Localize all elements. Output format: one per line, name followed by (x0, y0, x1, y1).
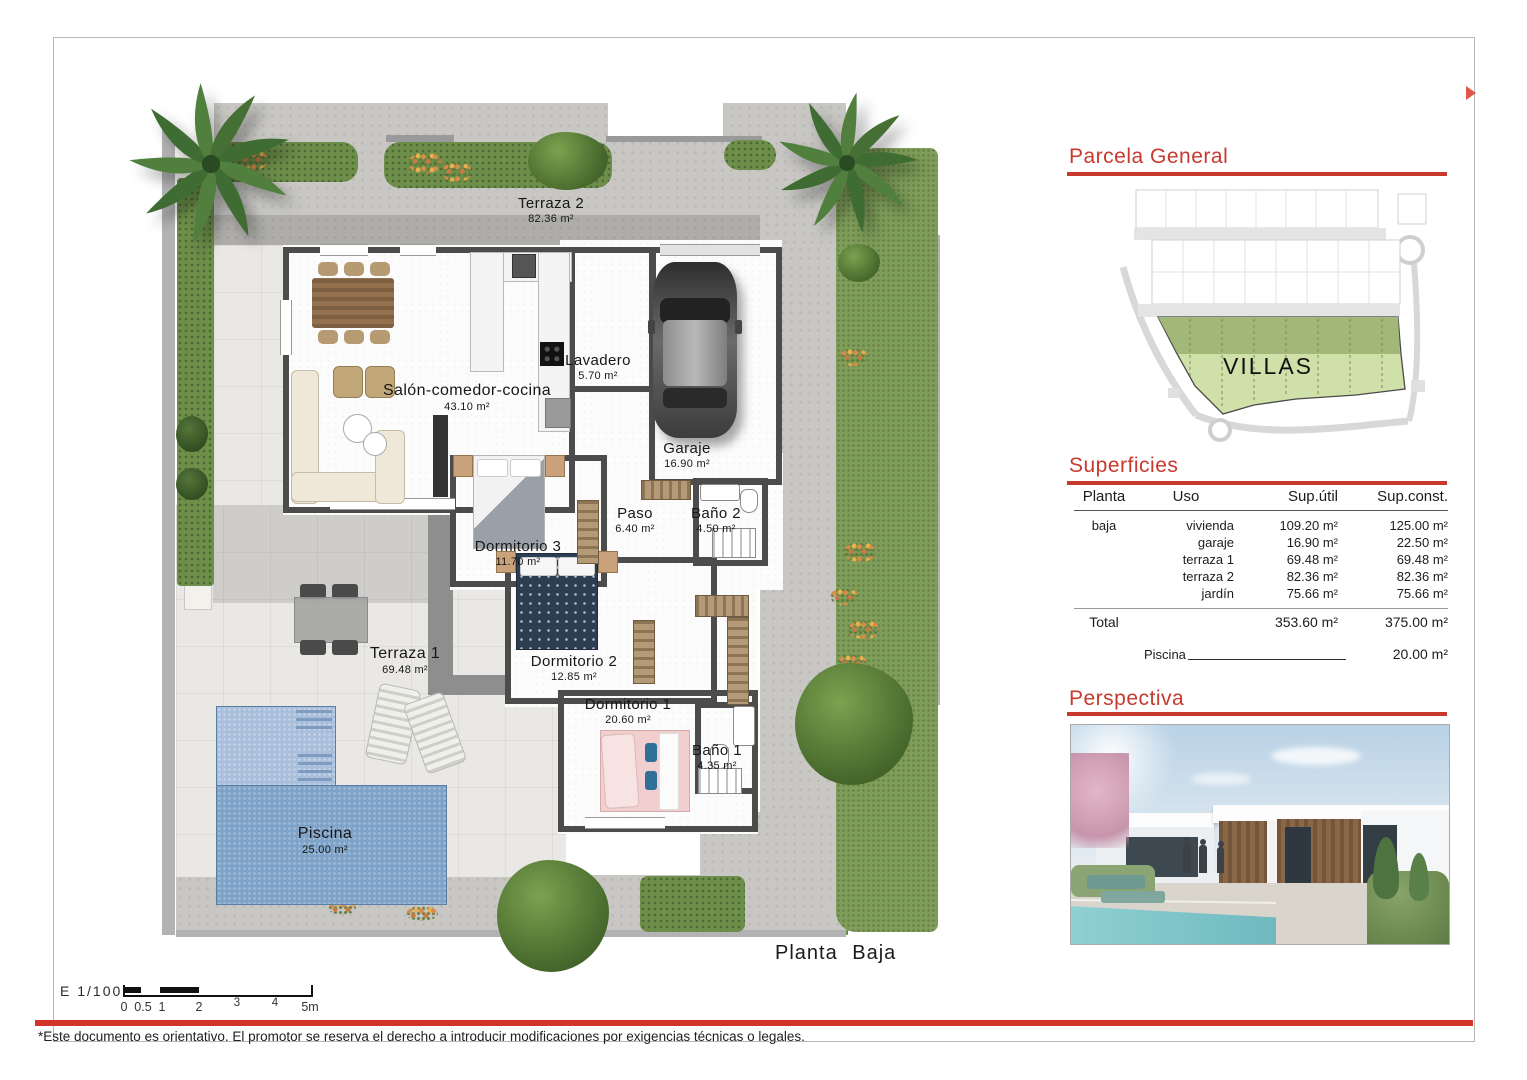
plan-title: Planta Baja (775, 942, 896, 965)
person-figure (1199, 845, 1207, 873)
scale-bar (123, 985, 313, 997)
nightstand (545, 455, 565, 477)
patio-table (294, 597, 368, 643)
scale-label: E 1/100 (60, 983, 122, 999)
sheet: Terraza 282.36 m² Salón-comedor-cocina43… (0, 0, 1527, 1080)
table-row: terraza 1 69.48 m² 69.48 m² (1070, 551, 1448, 568)
room-label: Lavadero5.70 m² (565, 352, 631, 382)
toilet (740, 489, 758, 513)
section-title-parcela: Parcela General (1069, 145, 1228, 169)
scale-tick: 1 (159, 1000, 166, 1014)
sink (733, 706, 755, 746)
section-rule (1067, 172, 1447, 176)
room-label: Terraza 169.48 m² (370, 645, 440, 676)
sink (700, 484, 740, 501)
scale-tick: 0.5 (134, 1000, 151, 1014)
scale-tick: 5m (301, 1000, 318, 1014)
room-label: Paso6.40 m² (615, 505, 654, 535)
scale-tick: 0 (121, 1000, 128, 1014)
room-label: Baño 14.35 m² (692, 742, 742, 772)
cooktop (540, 342, 564, 366)
person-figure (1183, 843, 1191, 873)
section-rule (1067, 712, 1447, 716)
perspective-render (1070, 724, 1450, 945)
scale-tick: 4 (272, 997, 278, 1009)
room-label: Salón-comedor-cocina43.10 m² (383, 382, 551, 413)
room-label: Baño 24.50 m² (691, 505, 741, 535)
table-row: garaje 16.90 m² 22.50 m² (1070, 534, 1448, 551)
scale-tick: 2 (196, 1000, 203, 1014)
pool-steps (296, 710, 332, 732)
garage-door (660, 244, 760, 256)
tv-unit (433, 415, 448, 497)
dining-table (312, 278, 394, 328)
armchair (333, 366, 363, 398)
pool-surface-row: Piscina 20.00 m² (1070, 646, 1448, 662)
room-label: Dormitorio 311.70 m² (475, 538, 562, 568)
surface-table-header: Planta Uso Sup.útil Sup.const. (1070, 488, 1448, 506)
car-top-view (653, 262, 737, 438)
room-label: Garaje16.90 m² (663, 440, 710, 470)
parcel-site-plan: VILLAS (1068, 182, 1448, 455)
room-label: Dormitorio 212.85 m² (531, 653, 618, 683)
closet (641, 480, 691, 500)
planter-top-right (724, 140, 776, 170)
nightstand (453, 455, 473, 477)
closet (577, 500, 599, 564)
page-edge-marker (1466, 86, 1476, 100)
room-label: Terraza 282.36 m² (518, 195, 584, 225)
closet (695, 595, 749, 617)
table-row: terraza 2 82.36 m² 82.36 m² (1070, 568, 1448, 585)
bottom-hedge (640, 876, 745, 932)
closet (633, 620, 655, 684)
room-label: Piscina25.00 m² (298, 825, 352, 856)
palm-tree-icon (125, 78, 297, 255)
section-title-perspectiva: Perspectiva (1069, 687, 1184, 711)
bed-bedroom1 (600, 730, 690, 812)
table-row: jardín 75.66 m² 75.66 m² (1070, 585, 1448, 602)
boundary-wall-top (386, 135, 454, 142)
person-figure (1217, 847, 1224, 873)
table-row: baja vivienda 109.20 m² 125.00 m² (1070, 517, 1448, 534)
room-label: Dormitorio 120.60 m² (585, 696, 672, 726)
kitchen-appliance (512, 254, 536, 278)
palm-tree-icon (772, 88, 922, 243)
closet (727, 617, 749, 705)
bed-bedroom3 (473, 455, 545, 549)
surface-table: Planta Uso Sup.útil Sup.const. baja vivi… (1070, 488, 1448, 662)
nightstand (598, 551, 618, 573)
scale-tick: 3 (234, 997, 240, 1009)
table-total-row: Total 353.60 m² 375.00 m² (1070, 614, 1448, 631)
pool-steps (298, 754, 332, 782)
footer-red-bar (35, 1020, 1473, 1026)
section-rule (1067, 481, 1447, 485)
bottom-tree (497, 860, 609, 972)
footer-disclaimer: *Este documento es orientativo. El promo… (38, 1029, 805, 1044)
parcel-zone-label: VILLAS (1223, 353, 1313, 379)
section-title-superficies: Superficies (1069, 454, 1178, 478)
floor-plan: Terraza 282.36 m² Salón-comedor-cocina43… (0, 0, 1000, 1000)
